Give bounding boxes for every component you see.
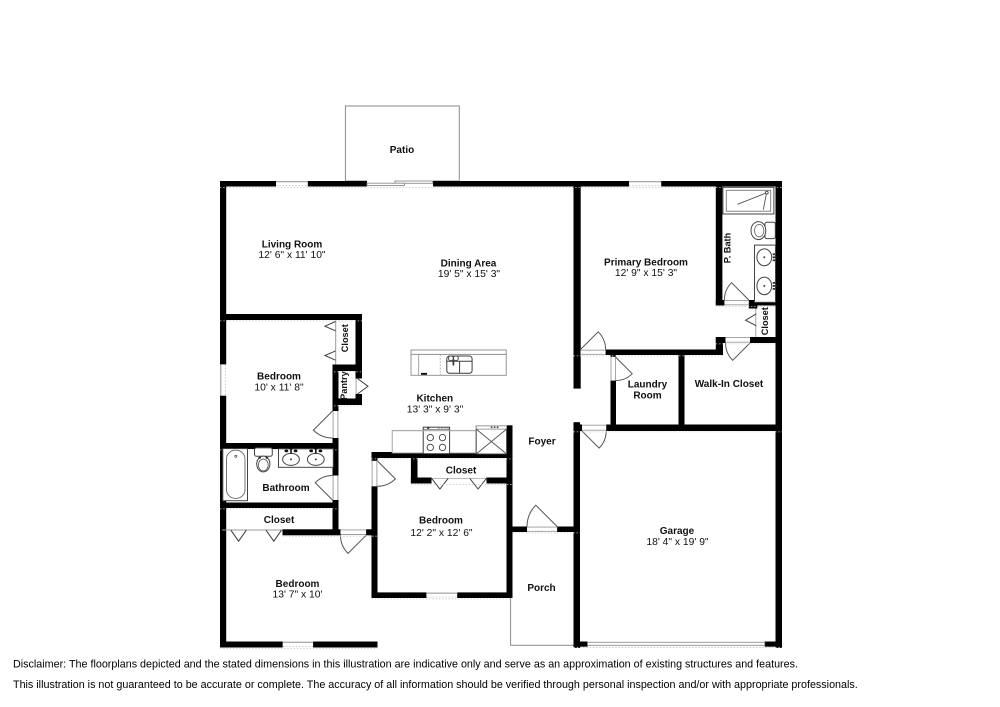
svg-text:12' 6" x 11' 10": 12' 6" x 11' 10" xyxy=(258,250,326,261)
svg-text:Closet: Closet xyxy=(264,515,295,526)
svg-text:Pantry: Pantry xyxy=(339,370,349,399)
svg-text:Laundry: Laundry xyxy=(628,380,668,391)
svg-text:P. Bath: P. Bath xyxy=(723,232,733,263)
svg-text:19' 5" x 15' 3": 19' 5" x 15' 3" xyxy=(438,269,501,280)
svg-text:12' 9" x 15' 3": 12' 9" x 15' 3" xyxy=(615,268,678,279)
svg-text:Bedroom: Bedroom xyxy=(257,371,301,382)
svg-text:Bedroom: Bedroom xyxy=(276,579,320,590)
svg-text:Walk-In Closet: Walk-In Closet xyxy=(695,379,764,390)
svg-text:This illustration is not guara: This illustration is not guaranteed to b… xyxy=(13,679,858,691)
svg-text:18' 4" x 19' 9": 18' 4" x 19' 9" xyxy=(646,537,709,548)
svg-text:Foyer: Foyer xyxy=(528,436,555,447)
svg-text:13' 7" x 10': 13' 7" x 10' xyxy=(273,590,323,601)
svg-text:Closet: Closet xyxy=(446,465,477,476)
svg-text:Living Room: Living Room xyxy=(262,240,323,251)
svg-text:Dining Area: Dining Area xyxy=(441,259,497,270)
svg-text:Closet: Closet xyxy=(760,307,770,335)
svg-text:Primary Bedroom: Primary Bedroom xyxy=(604,258,688,269)
svg-text:12' 2" x 12' 6": 12' 2" x 12' 6" xyxy=(410,528,473,539)
svg-text:Garage: Garage xyxy=(660,526,695,537)
svg-text:Closet: Closet xyxy=(340,324,350,352)
svg-text:Kitchen: Kitchen xyxy=(416,394,453,405)
svg-text:Bathroom: Bathroom xyxy=(262,483,309,494)
svg-text:Patio: Patio xyxy=(390,145,414,156)
svg-text:Room: Room xyxy=(633,391,661,402)
svg-text:Porch: Porch xyxy=(527,583,555,594)
svg-text:Bedroom: Bedroom xyxy=(419,516,463,527)
svg-text:Disclaimer: The floorplans dep: Disclaimer: The floorplans depicted and … xyxy=(13,658,798,670)
svg-text:13' 3" x 9' 3": 13' 3" x 9' 3" xyxy=(407,405,464,416)
svg-text:10' x 11' 8": 10' x 11' 8" xyxy=(254,382,304,393)
